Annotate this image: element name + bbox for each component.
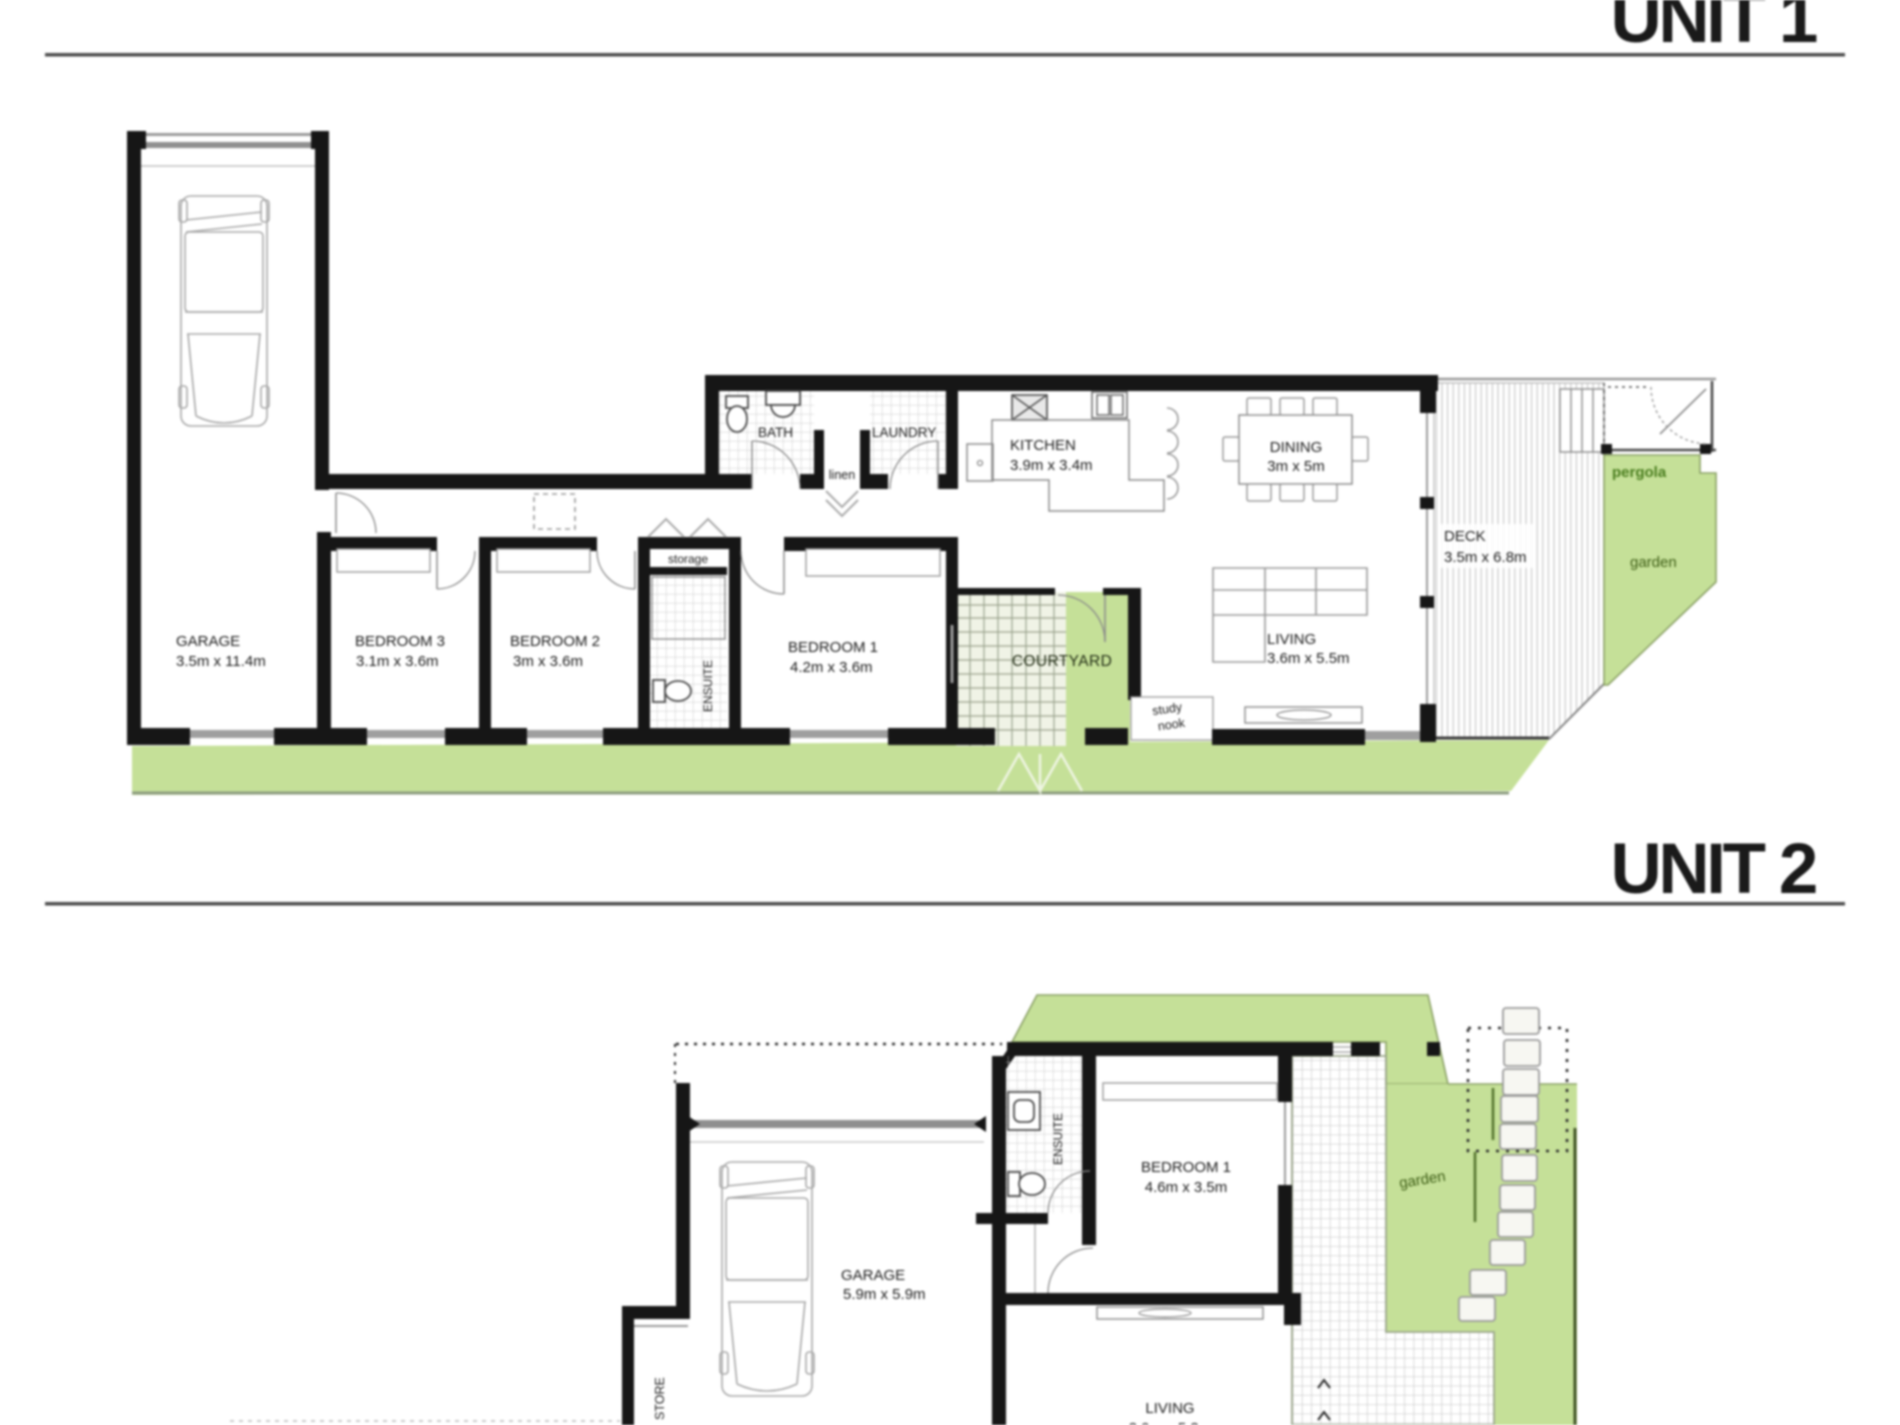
svg-text:BEDROOM 1: BEDROOM 1: [1141, 1159, 1231, 1176]
svg-text:BEDROOM 2: BEDROOM 2: [510, 633, 600, 650]
svg-text:3.1m x 3.6m: 3.1m x 3.6m: [356, 653, 439, 670]
svg-text:3.5m x 11.4m: 3.5m x 11.4m: [176, 653, 266, 670]
svg-text:DECK: DECK: [1444, 528, 1486, 545]
svg-text:pergola: pergola: [1612, 464, 1667, 481]
svg-text:LAUNDRY: LAUNDRY: [872, 425, 936, 440]
svg-text:storage: storage: [668, 552, 708, 566]
svg-text:3.9m x 3.4m: 3.9m x 3.4m: [1010, 457, 1093, 474]
svg-text:BATH: BATH: [758, 425, 793, 440]
svg-text:COURTYARD: COURTYARD: [1012, 653, 1112, 670]
svg-text:ENSUITE: ENSUITE: [1051, 1113, 1065, 1165]
svg-text:STORE: STORE: [653, 1377, 667, 1420]
svg-text:UNIT 1: UNIT 1: [1611, 0, 1817, 58]
svg-text:GARAGE: GARAGE: [841, 1267, 905, 1284]
svg-text:LIVING: LIVING: [1145, 1400, 1194, 1417]
svg-text:GARAGE: GARAGE: [176, 633, 240, 650]
svg-text:3m x 3.6m: 3m x 3.6m: [513, 653, 583, 670]
svg-text:3.6m x 5.5m: 3.6m x 5.5m: [1267, 650, 1350, 667]
svg-text:BEDROOM 3: BEDROOM 3: [355, 633, 445, 650]
svg-text:ENSUITE: ENSUITE: [701, 660, 715, 712]
svg-text:3.9m x 5.3m: 3.9m x 5.3m: [1129, 1420, 1212, 1425]
svg-text:3.5m x 6.8m: 3.5m x 6.8m: [1444, 549, 1527, 566]
svg-text:4.6m x 3.5m: 4.6m x 3.5m: [1145, 1179, 1228, 1196]
svg-text:DINING: DINING: [1270, 439, 1323, 456]
svg-text:BEDROOM 1: BEDROOM 1: [788, 639, 878, 656]
svg-text:linen: linen: [829, 468, 855, 482]
svg-text:LIVING: LIVING: [1267, 631, 1316, 648]
svg-text:4.2m x 3.6m: 4.2m x 3.6m: [790, 659, 873, 676]
svg-text:KITCHEN: KITCHEN: [1010, 437, 1076, 454]
svg-text:3m x 5m: 3m x 5m: [1267, 458, 1325, 475]
svg-text:UNIT 2: UNIT 2: [1611, 830, 1816, 909]
svg-text:5.9m x 5.9m: 5.9m x 5.9m: [843, 1286, 926, 1303]
svg-text:garden: garden: [1630, 554, 1677, 571]
